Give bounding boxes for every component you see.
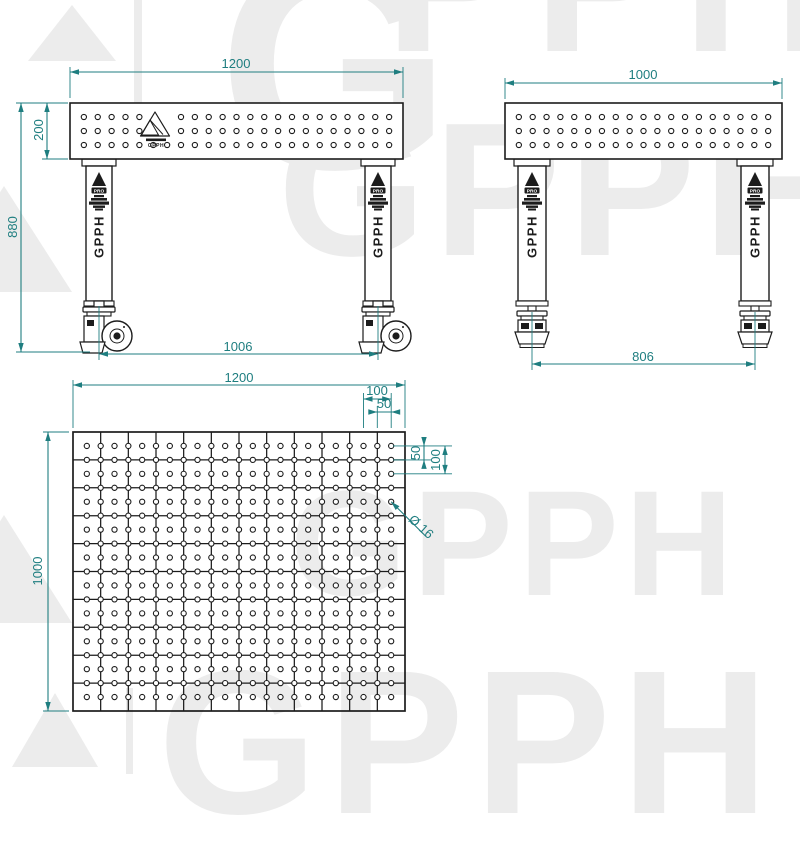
svg-text:PRO: PRO xyxy=(527,188,538,194)
front-legs xyxy=(82,159,395,306)
side-view xyxy=(514,159,773,306)
svg-text:PRO: PRO xyxy=(750,188,761,194)
svg-text:GPPH: GPPH xyxy=(92,215,107,258)
caster-left xyxy=(80,301,132,353)
svg-text:GPPH: GPPH xyxy=(525,215,540,258)
svg-text:GPPH: GPPH xyxy=(748,215,763,258)
svg-text:GPPH: GPPH xyxy=(148,143,164,149)
svg-text:PRO: PRO xyxy=(373,188,384,194)
front-view xyxy=(82,159,395,306)
svg-text:PRO: PRO xyxy=(94,188,105,194)
caster-right xyxy=(359,301,411,353)
side-legs xyxy=(514,159,773,306)
welding-table-technical-drawing: PROGPPHPROGPPHGPPHPROGPPHPROGPPH xyxy=(0,0,800,800)
svg-text:GPPH: GPPH xyxy=(371,215,386,258)
